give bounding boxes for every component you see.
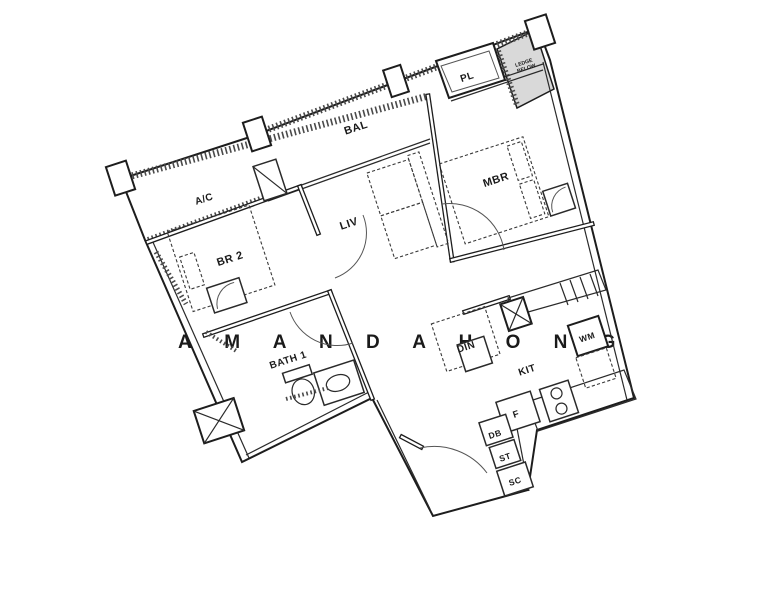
floor-plan-drawing: A M A N D A H O N G bbox=[0, 0, 770, 600]
unit-outline bbox=[121, 28, 634, 516]
floor-plan-page: A M A N D A H O N G bbox=[0, 0, 770, 600]
watermark-text: A M A N D A H O N G bbox=[178, 332, 629, 353]
